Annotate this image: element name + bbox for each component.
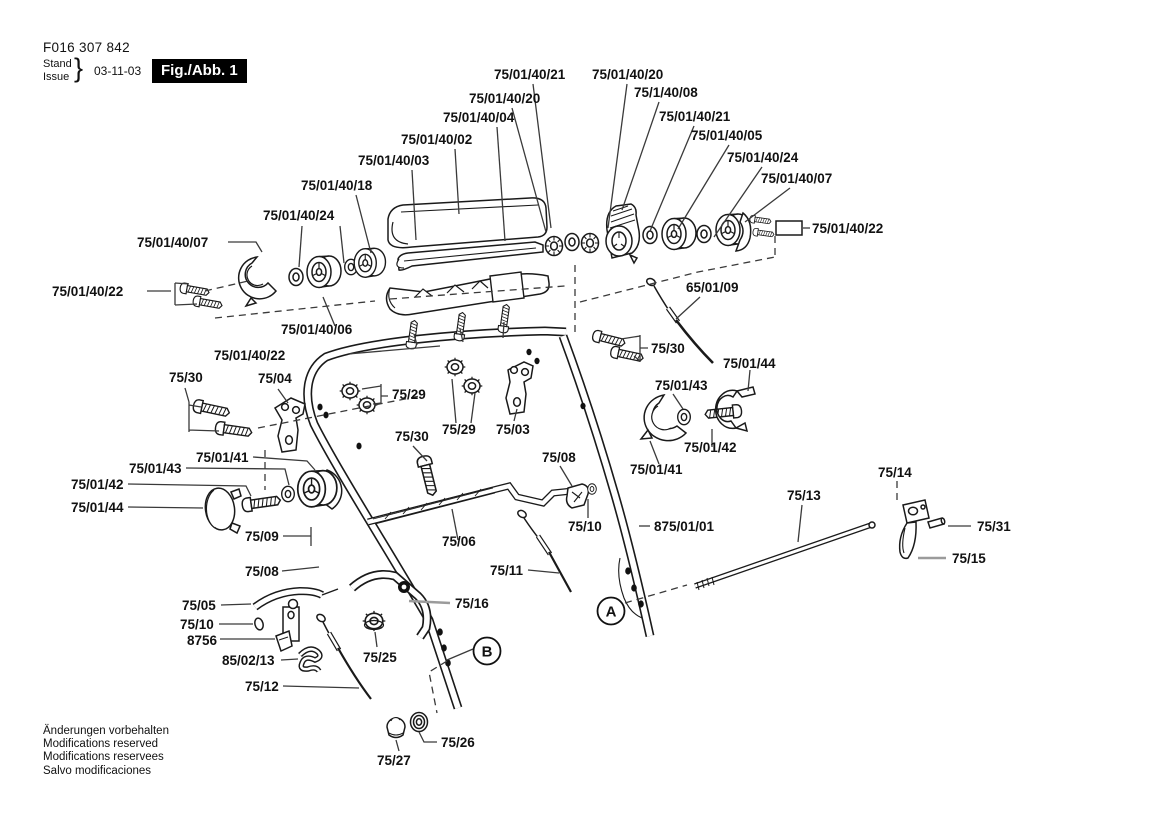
part-label-75-10: 75/10 (568, 519, 602, 534)
screw-sleeve-part (776, 221, 802, 235)
leader-lines (128, 84, 971, 751)
part-label-75-01-40-18: 75/01/40/18 (301, 178, 373, 193)
washer-75-01-43-left (282, 486, 295, 501)
left-screw-1 (179, 282, 210, 297)
left-roller-2 (354, 248, 385, 277)
issue-date: 03-11-03 (94, 64, 141, 78)
part-label-75-10: 75/10 (180, 617, 214, 632)
part-label-75-29: 75/29 (442, 422, 476, 437)
shell-screw-1 (406, 320, 420, 350)
part-labels: 75/01/40/2175/01/40/2075/01/40/2075/1/40… (52, 67, 1011, 768)
part-label-75-01-40-05: 75/01/40/05 (691, 128, 763, 143)
part-label-65-01-09: 65/01/09 (686, 280, 739, 295)
footer-line-es: Salvo modificaciones (43, 765, 169, 778)
part-label-75-01-43: 75/01/43 (655, 378, 708, 393)
part-label-75-08: 75/08 (245, 564, 279, 579)
callout-a: A (598, 598, 625, 625)
roller-75-01-41-left (298, 470, 342, 509)
nut-75-29-1 (340, 382, 361, 400)
left-washer-1 (289, 269, 303, 286)
clamp-75-08-right (567, 484, 589, 508)
part-label-75-30: 75/30 (395, 429, 429, 444)
washer-75-01-43-right (678, 409, 691, 424)
part-label-75-01-40-21: 75/01/40/21 (659, 109, 731, 124)
washer-75-26 (411, 713, 428, 732)
part-label-75-01-41: 75/01/41 (196, 450, 249, 465)
star-washer-2 (582, 234, 599, 253)
nut-75-29-4 (462, 377, 483, 395)
issue-label: Issue (43, 71, 72, 84)
washer-top-2 (643, 227, 657, 244)
nut-75-29-3 (445, 358, 466, 376)
part-label-75-01-44: 75/01/44 (723, 356, 776, 371)
part-label-75-01-40-24: 75/01/40/24 (263, 208, 335, 223)
clip-85-02-13 (300, 649, 320, 671)
left-roller-1 (307, 256, 341, 288)
part-label-75-1-40-08: 75/1/40/08 (634, 85, 698, 100)
part-label-75-15: 75/15 (952, 551, 986, 566)
part-label-75-01-40-20: 75/01/40/20 (469, 91, 540, 106)
washer-top-1 (565, 234, 579, 251)
part-label-75-09: 75/09 (245, 529, 279, 544)
part-label-75-01-40-06: 75/01/40/06 (281, 322, 353, 337)
bolt-75-30-left-1 (192, 399, 230, 419)
part-label-75-06: 75/06 (442, 534, 476, 549)
brace-glyph: } (74, 53, 83, 84)
footer-line-en: Modifications reserved (43, 738, 169, 751)
bolt-75-01-42-left (241, 493, 281, 512)
part-label-75-05: 75/05 (182, 598, 216, 613)
washer-75-10-center (588, 484, 597, 495)
part-label-75-04: 75/04 (258, 371, 292, 386)
bolt-75-30-right-1 (592, 330, 627, 349)
bracket-75-03 (506, 362, 533, 414)
parts-diagram-page: F016 307 842 Stand Issue } 03-11-03 Fig.… (0, 0, 1168, 825)
part-label-75-01-40-07: 75/01/40/07 (137, 235, 208, 250)
part-label-75-01-44: 75/01/44 (71, 500, 124, 515)
part-label-875-01-01: 875/01/01 (654, 519, 715, 534)
part-label-75-01-40-04: 75/01/40/04 (443, 110, 515, 125)
document-number: F016 307 842 (43, 40, 130, 55)
part-label-85-02-13: 85/02/13 (222, 653, 275, 668)
pin-75-31 (928, 518, 945, 528)
part-label-75-12: 75/12 (245, 679, 279, 694)
figure-badge: Fig./Abb. 1 (152, 59, 247, 83)
roller-top-1 (662, 218, 696, 250)
part-label-75-14: 75/14 (878, 465, 912, 480)
part-label-75-01-40-07: 75/01/40/07 (761, 171, 832, 186)
left-screw-2 (192, 295, 223, 310)
part-label-75-01-40-03: 75/01/40/03 (358, 153, 430, 168)
cap-nut-75-27 (387, 718, 405, 738)
part-label-75-01-43: 75/01/43 (129, 461, 182, 476)
part-label-75-01-40-22: 75/01/40/22 (812, 221, 883, 236)
footer-line-de: Änderungen vorbehalten (43, 725, 169, 738)
nut-75-29-2 (357, 396, 378, 414)
part-label-75-16: 75/16 (455, 596, 489, 611)
upper-shell-part (388, 198, 547, 248)
part-label-75-01-40-02: 75/01/40/02 (401, 132, 472, 147)
star-washer-1 (546, 237, 563, 256)
part-label-75-01-40-20: 75/01/40/20 (592, 67, 663, 82)
part-label-75-01-42: 75/01/42 (684, 440, 737, 455)
stand-issue-block: Stand Issue (43, 58, 72, 83)
part-label-75-01-40-22: 75/01/40/22 (52, 284, 123, 299)
part-label-75-30: 75/30 (651, 341, 685, 356)
latch-8756 (276, 631, 292, 651)
part-label-75-29: 75/29 (392, 387, 426, 402)
bracket-75-04 (275, 398, 305, 452)
callout-a-letter: A (606, 604, 617, 621)
part-label-75-27: 75/27 (377, 753, 411, 768)
callout-b-letter: B (482, 644, 493, 661)
adjuster-knob-part (606, 204, 639, 263)
brake-lever-75-05 (255, 589, 338, 641)
part-label-75-31: 75/31 (977, 519, 1011, 534)
right-screw-2 (752, 228, 774, 238)
bolt-75-30-left-2 (215, 421, 253, 439)
footer-line-fr: Modifications reservees (43, 751, 169, 764)
part-label-75-11: 75/11 (490, 563, 524, 578)
bolt-75-30-right-2 (610, 346, 645, 364)
nut-75-25 (363, 611, 386, 631)
bolt-75-30-center (416, 455, 440, 497)
part-label-75-13: 75/13 (787, 488, 821, 503)
exploded-parts-drawing: A B 75/01/40/2175/01/40/2075/01/40/2075/… (0, 0, 1168, 825)
washer-top-3 (697, 226, 711, 243)
part-label-75-08: 75/08 (542, 450, 576, 465)
footer-notice: Änderungen vorbehalten Modifications res… (43, 725, 169, 778)
stand-label: Stand (43, 58, 72, 71)
rod-75-13 (695, 522, 875, 590)
cable-75-11 (517, 509, 571, 592)
cross-bar-75-06 (368, 486, 585, 524)
part-label-75-01-40-24: 75/01/40/24 (727, 150, 799, 165)
bolt-75-01-42-right (705, 404, 743, 421)
part-label-75-01-42: 75/01/42 (71, 477, 124, 492)
bushing-75-10-bottom (254, 617, 265, 631)
callout-b: B (474, 638, 501, 665)
part-label-8756: 8756 (187, 633, 218, 648)
part-label-75-01-41: 75/01/41 (630, 462, 683, 477)
disc-75-01-44-left (203, 486, 241, 533)
diagram-parts (179, 198, 945, 738)
roller-clamp-part (716, 213, 751, 251)
part-label-75-30: 75/30 (169, 370, 203, 385)
trigger-75-15 (900, 500, 929, 558)
part-label-75-25: 75/25 (363, 650, 397, 665)
part-label-75-01-40-21: 75/01/40/21 (494, 67, 566, 82)
part-label-75-01-40-22: 75/01/40/22 (214, 348, 285, 363)
part-label-75-03: 75/03 (496, 422, 530, 437)
part-label-75-26: 75/26 (441, 735, 475, 750)
